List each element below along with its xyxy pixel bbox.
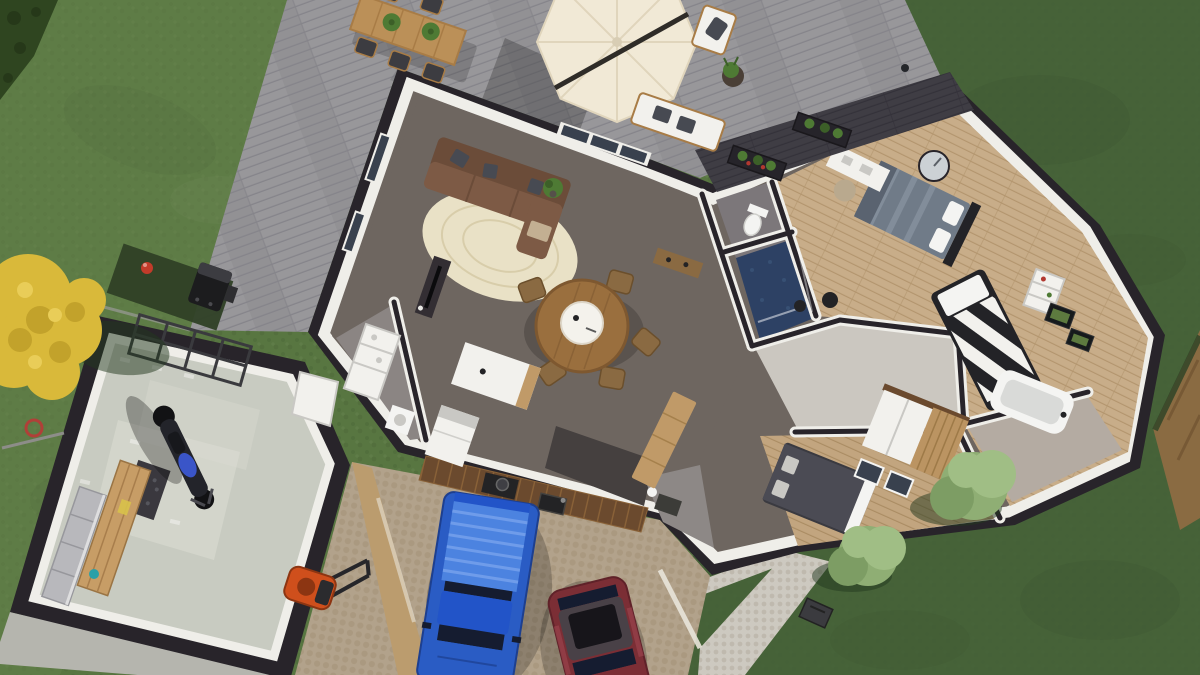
vacuum-robot [822, 292, 838, 308]
small-object-on-lawn [901, 64, 909, 72]
watering-can [89, 569, 99, 579]
table-item [573, 315, 579, 321]
parasol-hub [612, 37, 622, 47]
floor-plan-screenshot [0, 0, 1200, 675]
shower-column [794, 300, 806, 312]
plant-pot [550, 191, 557, 198]
round-dining-table [536, 278, 628, 374]
entry-vase [647, 487, 657, 497]
red-ball [141, 262, 153, 274]
round-mirror [919, 151, 949, 181]
floor-plan-render [0, 0, 1200, 675]
serving-platter [561, 302, 603, 344]
throw-pillow [482, 163, 498, 179]
living-plant [543, 178, 563, 198]
